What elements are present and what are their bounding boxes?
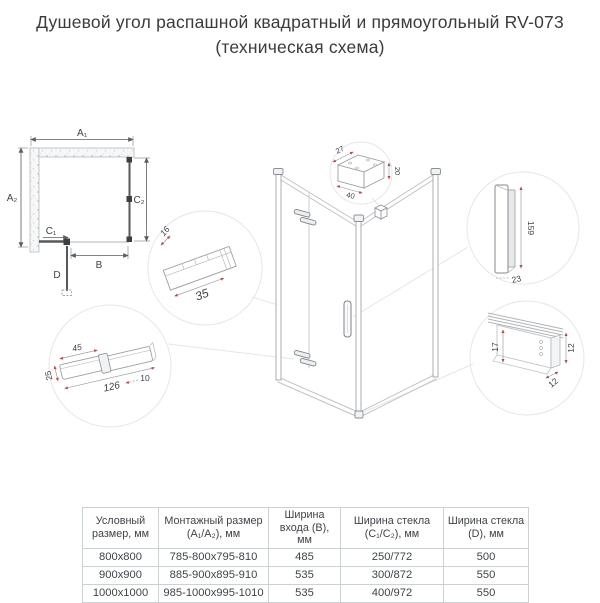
hinge-dim-thickness: 10 <box>140 373 150 383</box>
cell-glass-c: 250/772 <box>341 548 444 566</box>
plan-view: A₁ A₂ C₂ C₁ B D <box>7 128 150 296</box>
table-row: 900x900 885-900x895-910 535 300/872 550 <box>83 566 529 584</box>
iso-cap-right <box>431 169 441 175</box>
iso-view <box>274 169 441 419</box>
cell-mounting: 885-900x895-910 <box>159 566 269 584</box>
wall-profile-dim-width: 35 <box>193 286 211 304</box>
hinge-bottom-a <box>294 350 311 358</box>
size-spec-table: Условный размер, мм Монтажный размер (A₁… <box>82 507 529 603</box>
header-mounting-size: Монтажный размер (A₁/A₂), мм <box>159 508 269 549</box>
iso-foot-corner <box>355 411 363 418</box>
cell-nominal: 1000x1000 <box>83 584 159 602</box>
table-header-row: Условный размер, мм Монтажный размер (A₁… <box>83 508 529 549</box>
handle-dim-width: 23 <box>511 273 523 285</box>
handle-dim-height: 159 <box>526 221 536 235</box>
cell-glass-c: 400/972 <box>341 584 444 602</box>
cell-glass-c: 300/872 <box>341 566 444 584</box>
plan-bracket-mid <box>127 196 133 202</box>
bottom-rail-dim-height: 12 <box>566 343 576 353</box>
cell-entry: 535 <box>269 566 341 584</box>
bracket-dim-depth: 27 <box>334 144 346 156</box>
iso-wall-bracket <box>375 205 387 219</box>
plan-bracket-bottom <box>127 237 133 243</box>
plan-wall-left <box>30 148 39 252</box>
hinge-dim-length: 126 <box>102 380 121 395</box>
header-entry-width: Ширина входа (B), мм <box>269 508 341 549</box>
iso-post-left <box>276 172 281 380</box>
cell-entry: 535 <box>269 584 341 602</box>
hinge-bottom-b <box>300 358 317 366</box>
header-glass-width-d: Ширина стекла (D), мм <box>444 508 529 549</box>
header-nominal-size: Условный размер, мм <box>83 508 159 549</box>
cell-mounting: 785-800x795-810 <box>159 548 269 566</box>
cell-nominal: 900x900 <box>83 566 159 584</box>
hinge-top-b <box>300 217 317 225</box>
hinge-top-a <box>294 209 311 217</box>
wall-profile-dim-depth: 16 <box>158 224 172 238</box>
plan-dim-c2-label: C₂ <box>133 195 144 206</box>
plan-hinge-block <box>64 239 71 246</box>
iso-cap-left <box>274 169 284 175</box>
cell-entry: 485 <box>269 548 341 566</box>
plan-dim-d-label: D <box>53 270 60 281</box>
header-glass-width-c: Ширина стекла (C₁/C₂), мм <box>341 508 444 549</box>
plan-dim-c1-label: C₁ <box>46 226 57 237</box>
cell-glass-d: 500 <box>444 548 529 566</box>
detail-handle: 159 23 <box>495 185 536 285</box>
table-row: 1000x1000 985-1000x995-1010 535 400/972 … <box>83 584 529 602</box>
cell-nominal: 800x800 <box>83 548 159 566</box>
detail-bottom-rail: 17 12 12 <box>488 313 576 390</box>
callout-circle-handle <box>467 172 579 284</box>
iso-cap-corner <box>354 215 364 222</box>
plan-wall-top <box>30 148 134 157</box>
iso-post-corner <box>356 219 361 416</box>
cell-mounting: 985-1000x995-1010 <box>159 584 269 602</box>
table-row: 800x800 785-800x795-810 485 250/772 500 <box>83 548 529 566</box>
bracket-dim-width: 40 <box>345 190 355 201</box>
cell-glass-d: 550 <box>444 584 529 602</box>
plan-dim-a2-label: A₂ <box>7 193 18 204</box>
cell-glass-d: 550 <box>444 566 529 584</box>
hinge-dim-plate: 45 <box>71 342 83 354</box>
technical-schema-page: Душевой угол распашной квадратный и прям… <box>0 0 600 600</box>
hinge-dim-height: 25 <box>43 370 55 382</box>
plan-dim-b-label: B <box>96 260 103 271</box>
detail-wall-profile: 35 16 <box>158 224 244 311</box>
bottom-rail-dim-glass: 17 <box>490 342 500 352</box>
iso-post-right <box>433 172 438 377</box>
bracket-dim-height: 20 <box>393 167 402 175</box>
plan-bracket-top <box>127 157 133 163</box>
bottom-rail-dim-depth: 12 <box>546 376 560 390</box>
plan-dim-a1-label: A₁ <box>77 128 88 139</box>
iso-hinges <box>294 209 317 366</box>
handle-front-bar <box>495 185 508 273</box>
